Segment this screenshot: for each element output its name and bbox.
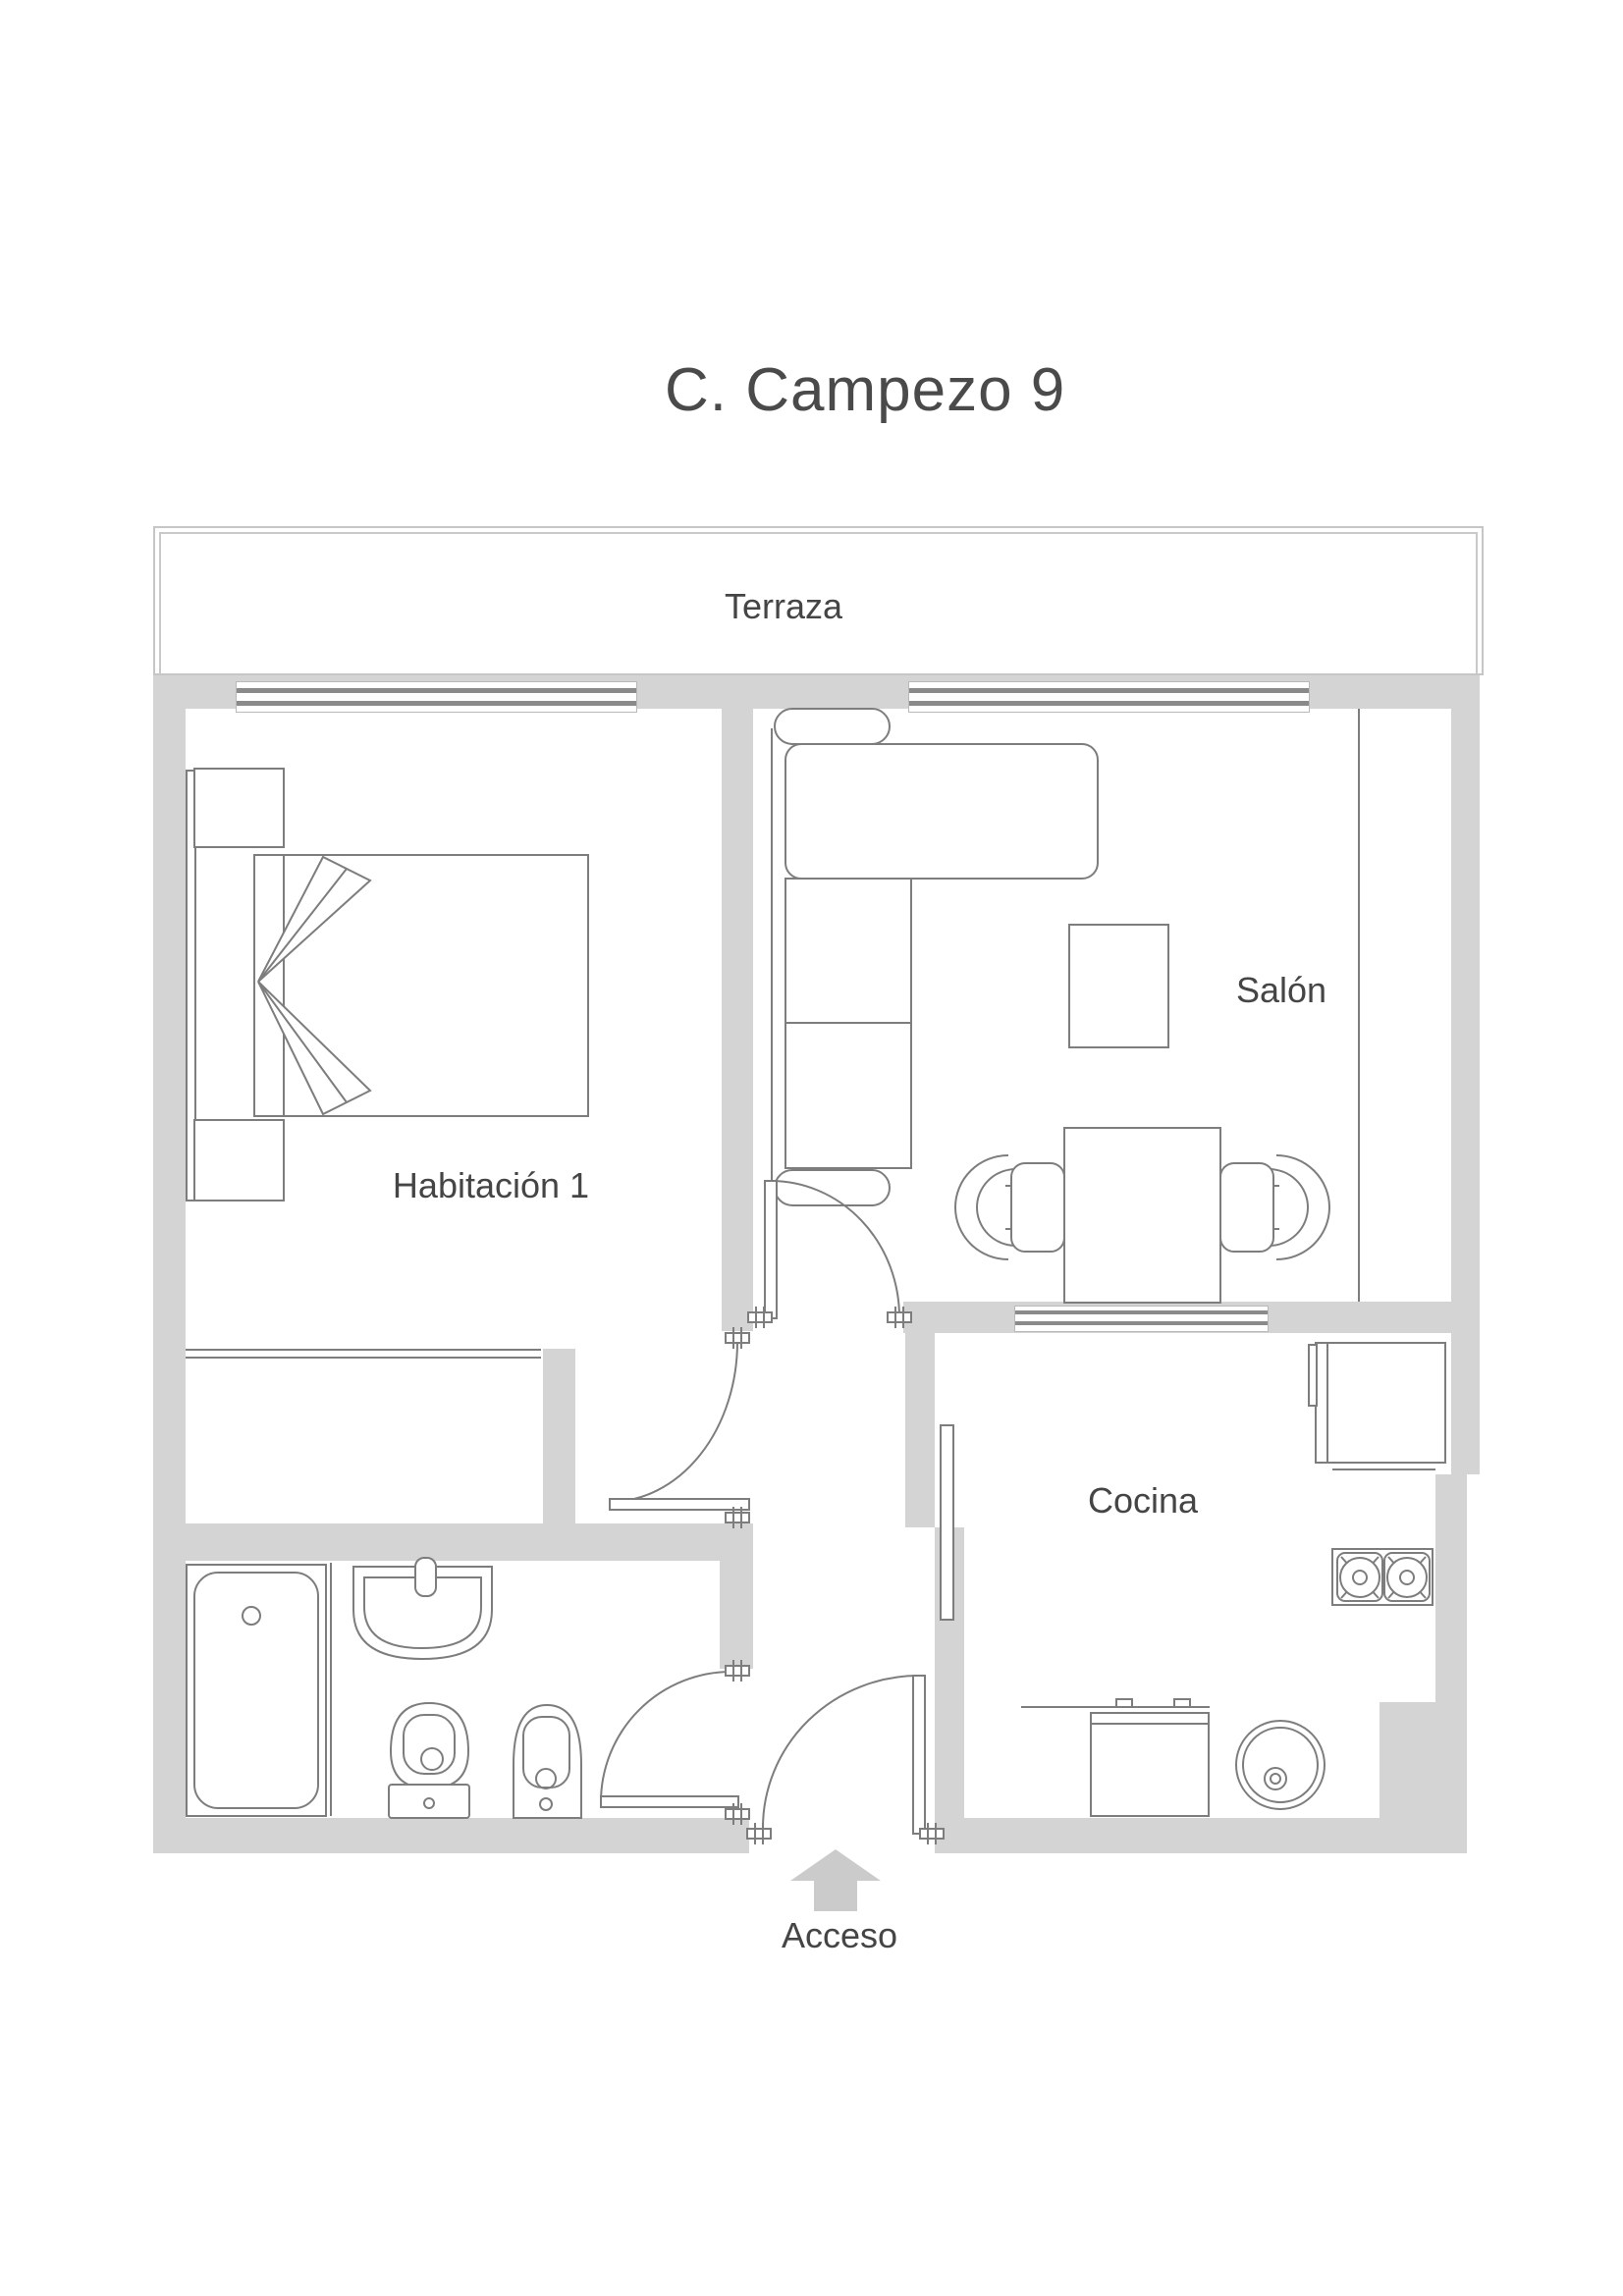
bedroom-door <box>610 1327 749 1528</box>
bidet <box>514 1705 581 1818</box>
entrance-arrow-icon <box>790 1849 881 1911</box>
entrance-door <box>747 1676 944 1844</box>
kitchen-sink <box>1236 1721 1325 1809</box>
washing-machine <box>1091 1713 1209 1816</box>
kitchen-label: Cocina <box>1088 1480 1198 1522</box>
dining-set <box>955 1128 1329 1303</box>
stove <box>1332 1549 1433 1605</box>
bedroom-label: Habitación 1 <box>393 1165 589 1206</box>
toilet <box>389 1703 469 1818</box>
wardrobe-nook-lines <box>186 1350 541 1358</box>
fridge <box>1309 1343 1445 1463</box>
entrance-label: Acceso <box>782 1915 897 1956</box>
bathroom-door <box>601 1660 749 1825</box>
salon-label: Salón <box>1236 970 1326 1011</box>
bathtub <box>187 1563 331 1816</box>
bed <box>187 769 588 1201</box>
side-table <box>1069 925 1168 1047</box>
floor-plan-page: C. Campezo 9 Terraza <box>0 0 1623 2296</box>
sofa <box>772 709 1098 1205</box>
kitchen-door-leaf <box>941 1425 953 1620</box>
washbasin <box>353 1558 492 1659</box>
